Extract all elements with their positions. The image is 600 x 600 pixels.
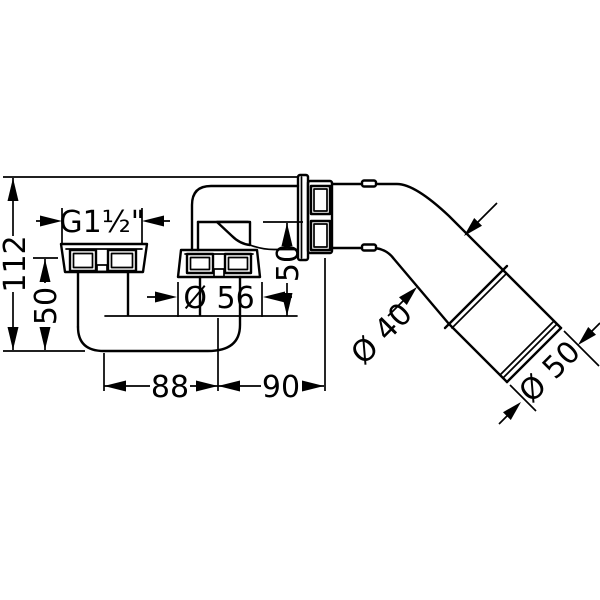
dim-label-thread-size: G1½"	[59, 205, 144, 240]
left-flange	[61, 244, 147, 272]
dim-label-pipe-diameter: Ø 40	[344, 296, 419, 371]
dim-label-left-height: 50	[29, 287, 64, 325]
dim-label-total-height: 112	[0, 235, 33, 292]
overflow-elbow	[192, 186, 298, 250]
dim-label-overflow-height: 50	[271, 244, 306, 282]
dim-label-span-right: 90	[262, 370, 300, 405]
dim-label-flange-diameter: Ø 56	[183, 281, 254, 316]
dimension-labels: 112 50 G1½" Ø 56 50 88 90 Ø 40 Ø 50	[0, 205, 588, 410]
overflow-spout	[217, 222, 250, 245]
middle-flange	[178, 250, 260, 277]
pipe-clip-bottom	[362, 245, 376, 251]
pipe-clip-top	[362, 181, 376, 187]
drawing-canvas: 112 50 G1½" Ø 56 50 88 90 Ø 40 Ø 50	[0, 0, 600, 600]
technical-drawing: 112 50 G1½" Ø 56 50 88 90 Ø 40 Ø 50	[0, 0, 600, 600]
dim-label-span-left: 88	[151, 370, 189, 405]
